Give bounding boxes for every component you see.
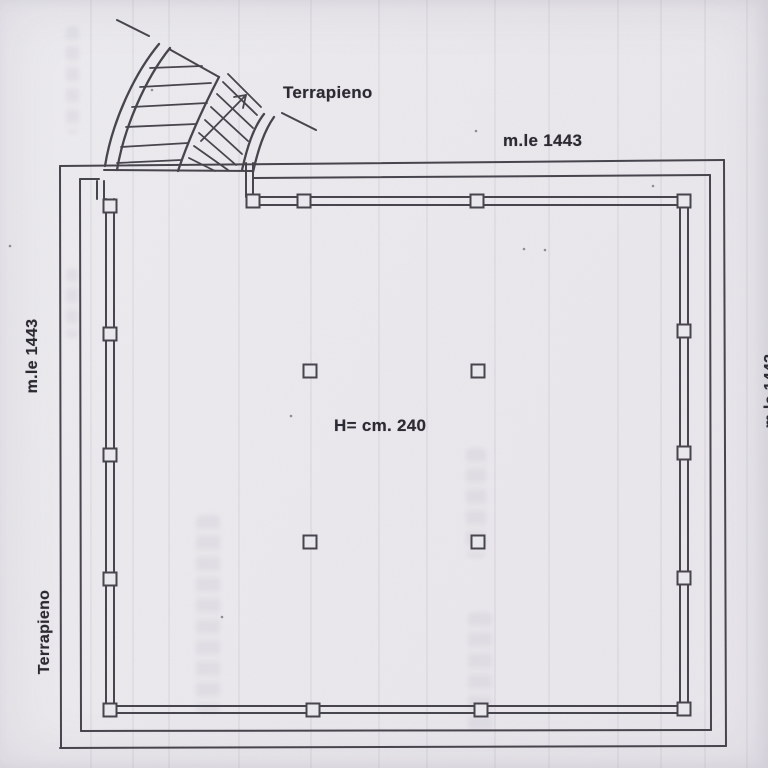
label-mle-1443-right-clipped: m.le 1443 [762, 346, 768, 436]
pillar [472, 536, 485, 549]
hatch-line-left-fan [126, 124, 196, 127]
pillar [678, 572, 691, 585]
hatch-line-right-fan [205, 120, 242, 154]
pillar [304, 365, 317, 378]
label-terrapieno-top: Terrapieno [283, 83, 373, 103]
embankment-hatch-group [117, 66, 261, 171]
hatch-line-left-fan [117, 160, 181, 163]
pillar [104, 449, 117, 462]
wall-line [724, 160, 726, 746]
ink-speck [221, 616, 224, 619]
label-mle-1443-left: m.le 1443 [24, 311, 42, 401]
hatch-line-right-fan [217, 94, 253, 128]
hatch-line-left-fan [132, 103, 207, 107]
ink-speck [9, 245, 12, 248]
ink-speck [475, 130, 478, 133]
wall-line [710, 175, 711, 730]
pillars-group [104, 195, 691, 717]
pillar [678, 325, 691, 338]
walls-group [60, 160, 726, 748]
label-height-note: H= cm. 240 [334, 416, 426, 436]
ink-speck [151, 89, 154, 92]
pillar [678, 703, 691, 716]
scanned-floor-plan-page: Terrapieno m.le 1443 m.le 1443 Terrapien… [0, 0, 768, 768]
label-terrapieno-left: Terrapieno [36, 577, 54, 687]
arc-wall [105, 44, 159, 166]
fan-edge-line [282, 113, 316, 130]
wall-line [80, 179, 81, 731]
floor-plan-drawing [0, 0, 768, 768]
label-mle-1443-top: m.le 1443 [503, 131, 582, 151]
hatch-line-right-fan [194, 146, 228, 170]
pillar [475, 704, 488, 717]
pillar [471, 195, 484, 208]
pillar [104, 200, 117, 213]
wall-line [60, 746, 726, 748]
hatch-line-left-fan [140, 83, 211, 87]
ink-speck [523, 248, 526, 251]
pillar [307, 704, 320, 717]
ink-speck [544, 249, 547, 252]
pillar [104, 573, 117, 586]
pillar [104, 704, 117, 717]
pillar [104, 328, 117, 341]
pillar [247, 195, 260, 208]
wall-line [253, 175, 710, 178]
pillar [472, 365, 485, 378]
hatch-line-left-fan [121, 143, 188, 147]
wall-line [60, 166, 61, 748]
ink-speck [652, 185, 655, 188]
wall-line [81, 730, 711, 731]
fan-edge-line [169, 49, 219, 77]
ink-speck [290, 415, 293, 418]
pillar [298, 195, 311, 208]
fan-edge-line [117, 20, 149, 36]
pillar [678, 447, 691, 460]
pillar [304, 536, 317, 549]
pillar [678, 195, 691, 208]
